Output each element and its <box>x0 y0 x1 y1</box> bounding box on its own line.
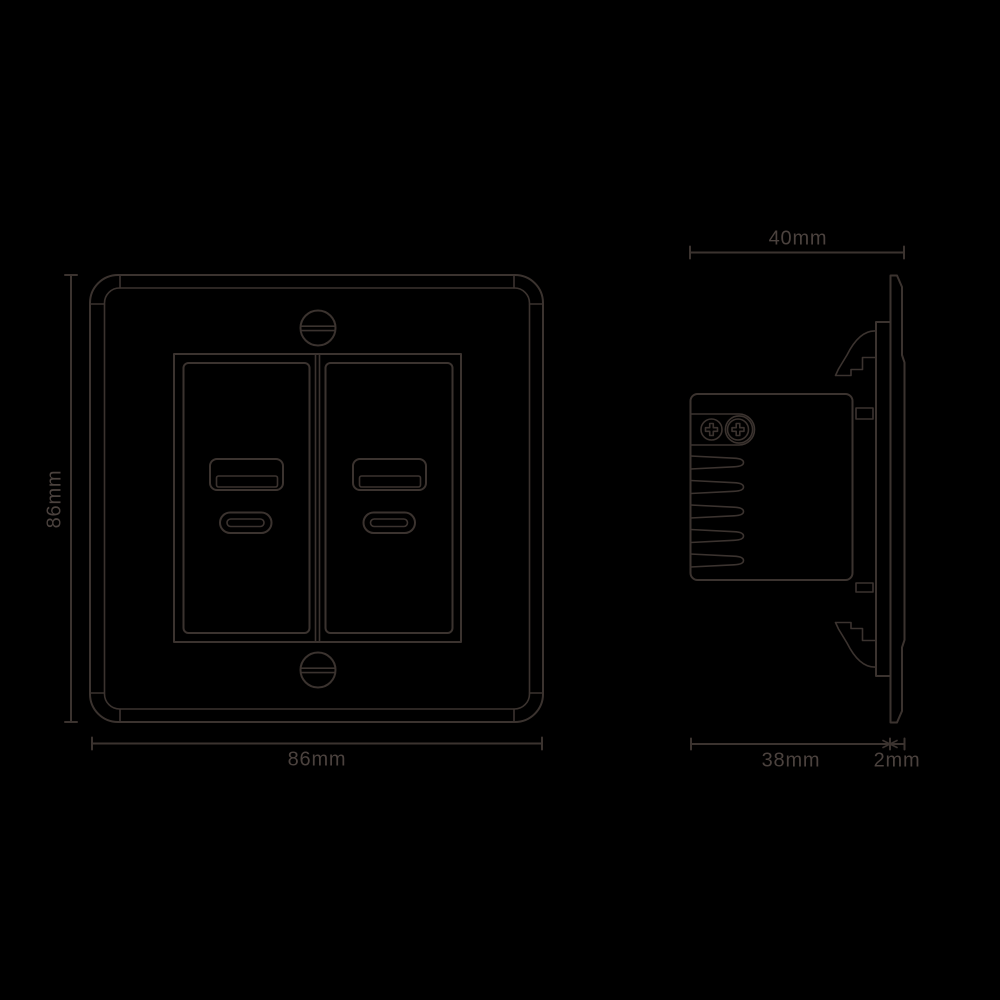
mounting-clip-bottom <box>856 583 873 592</box>
front-view <box>65 275 543 750</box>
side-view <box>690 247 905 750</box>
faceplate-outline <box>90 275 543 722</box>
side-bottom-dimension-lines <box>691 739 905 750</box>
terminal-screw-panel <box>691 414 755 445</box>
mounting-screw-top <box>301 311 336 346</box>
module-frame <box>174 354 461 642</box>
mounting-screw-bottom <box>301 653 336 688</box>
corner-seam-lines <box>91 276 543 722</box>
front-height-dimension-line <box>65 275 77 722</box>
side-plate-thickness-label: 2mm <box>874 750 921 773</box>
phillips-cross-icon <box>732 424 744 436</box>
usb-a-port-left <box>210 459 283 490</box>
mounting-yoke <box>876 322 891 676</box>
side-total-depth-label: 40mm <box>769 228 828 251</box>
terminal-screw-left <box>701 419 722 440</box>
faceplate-profile <box>891 276 905 723</box>
usb-a-port-right <box>353 459 426 490</box>
terminal-screw-right <box>725 416 752 443</box>
fixing-claw-top <box>836 331 877 376</box>
usb-module-right <box>326 363 453 633</box>
mounting-clip-top <box>856 408 873 419</box>
vent-fins <box>691 456 744 567</box>
front-height-label: 86mm <box>44 470 67 529</box>
usb-c-port-right <box>364 513 416 534</box>
mechanism-body <box>691 394 853 580</box>
usb-c-port-left <box>220 513 272 534</box>
fixing-claw-bottom <box>836 623 877 668</box>
side-body-depth-label: 38mm <box>762 750 821 773</box>
phillips-cross-icon <box>706 424 718 436</box>
dimension-drawing <box>0 0 1000 1000</box>
usb-module-left <box>184 363 310 633</box>
technical-drawing-canvas: 86mm 86mm 40mm 38mm 2mm <box>0 0 1000 1000</box>
front-width-label: 86mm <box>288 749 347 772</box>
faceplate-bevel <box>105 288 530 709</box>
